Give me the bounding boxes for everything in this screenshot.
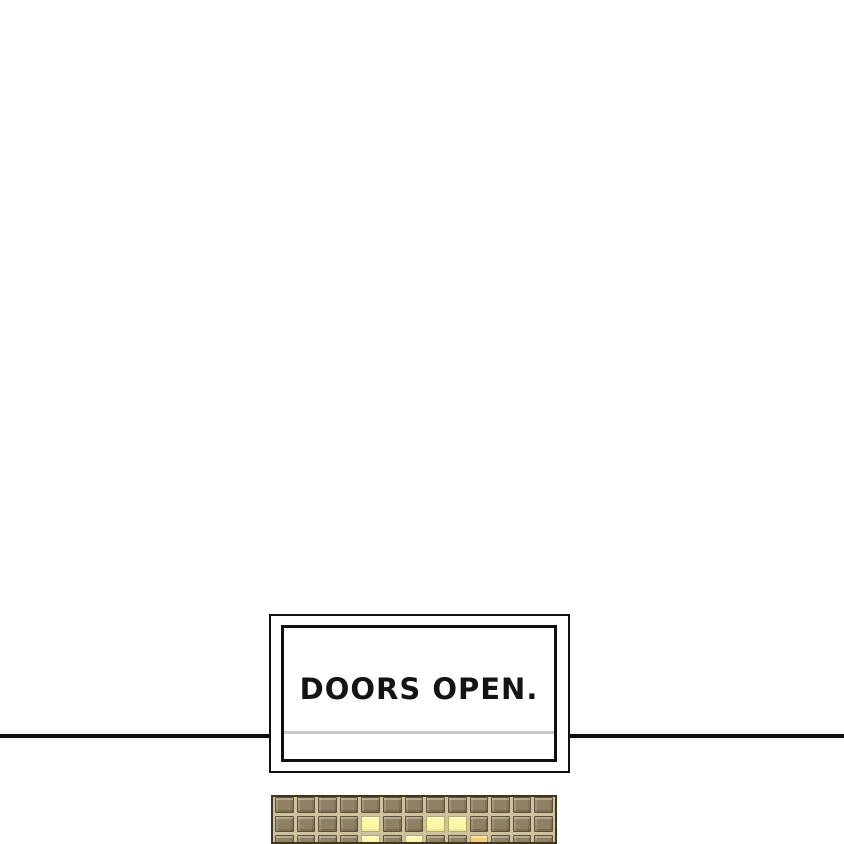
tile <box>318 835 337 844</box>
tile-lit <box>426 816 445 832</box>
tile <box>405 797 424 813</box>
caption-box-inner: DOORS OPEN. <box>281 625 557 762</box>
elevator-tile-panel <box>271 795 557 844</box>
tile <box>297 797 316 813</box>
tile-lit <box>361 816 380 832</box>
tile <box>491 797 510 813</box>
tile <box>405 816 424 832</box>
tile <box>513 797 532 813</box>
tile <box>297 835 316 844</box>
tile <box>340 816 359 832</box>
tile <box>383 797 402 813</box>
tile <box>340 835 359 844</box>
tile <box>470 816 489 832</box>
tile-lit <box>448 816 467 832</box>
tile <box>491 835 510 844</box>
tile <box>448 835 467 844</box>
tile-lit <box>405 835 424 844</box>
caption-text: DOORS OPEN. <box>284 672 554 706</box>
caption-box: DOORS OPEN. <box>269 614 570 773</box>
tile <box>491 816 510 832</box>
tile <box>534 816 553 832</box>
tile <box>275 816 294 832</box>
tile <box>275 835 294 844</box>
tile <box>513 835 532 844</box>
tile <box>448 797 467 813</box>
tile <box>426 835 445 844</box>
tile <box>318 797 337 813</box>
tile-lit <box>470 835 489 844</box>
tile <box>318 816 337 832</box>
tile <box>340 797 359 813</box>
tile <box>513 816 532 832</box>
tile-grid <box>273 797 555 844</box>
tile <box>383 816 402 832</box>
tile <box>297 816 316 832</box>
tile <box>383 835 402 844</box>
tile <box>534 797 553 813</box>
tile <box>361 797 380 813</box>
tile <box>426 797 445 813</box>
tile-lit <box>361 835 380 844</box>
tile <box>470 797 489 813</box>
webtoon-panel: DOORS OPEN. <box>0 0 844 844</box>
caption-gray-line <box>284 731 554 734</box>
tile <box>534 835 553 844</box>
tile <box>275 797 294 813</box>
